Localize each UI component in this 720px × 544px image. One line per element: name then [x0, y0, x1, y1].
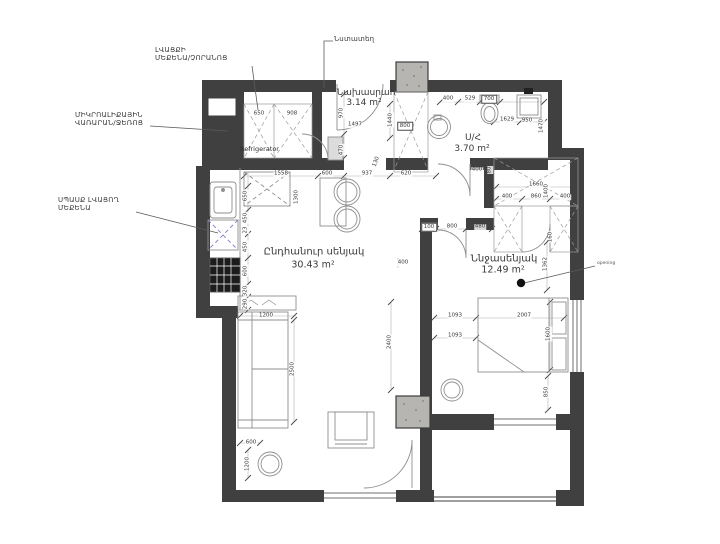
- dimension-label: 1200: [245, 457, 251, 472]
- balcony-rail: [434, 497, 556, 501]
- dimension-label: 400: [501, 194, 513, 200]
- dimension-label: 400: [397, 260, 409, 266]
- toilet-bowl: [481, 103, 498, 124]
- wall-niche: [208, 98, 236, 116]
- dimension-label: 529: [464, 96, 476, 102]
- dishwasher-callout: ՍՊԱՍՔ ԼՎԱՑՈՂՄԵՔԵՆԱ: [58, 197, 119, 213]
- washer-dryer-line1: ԼՎԱՑՔԻ: [155, 46, 186, 54]
- pantry-counter: [320, 178, 346, 226]
- kitchen-fixtures: [208, 168, 360, 310]
- blanket-fold: [478, 340, 524, 372]
- dimension-label: 1093: [448, 333, 463, 339]
- hallway-name: Նախասրահ: [337, 88, 396, 98]
- hallway-area: 3.14 m²: [346, 98, 381, 108]
- dimension-label: 23: [243, 226, 249, 234]
- dimension-label: 1600: [546, 327, 552, 342]
- dimension-label: 320: [243, 285, 249, 297]
- microwave-line2: ՎԱՌԱՐԱՆ/ՋԵՌՈՑ: [75, 119, 143, 127]
- refrigerator-label: Refrigerator: [240, 146, 279, 153]
- washer-dryer-line2: ՄԵՔԵՆԱ/ՉՈՐԱՆՈՑ: [155, 54, 227, 62]
- dimension-label: 480: [474, 224, 486, 230]
- dimension-label: 1362: [543, 257, 549, 272]
- dimension-label: 908: [286, 111, 298, 117]
- dimension-label: 650: [243, 190, 249, 202]
- bedroom-door: [438, 230, 466, 258]
- balcony-door: [364, 440, 412, 488]
- dimension-label: 1558: [274, 171, 289, 177]
- dimension-label: 600: [321, 171, 333, 177]
- living-room-area: 30.43 m²: [291, 261, 334, 272]
- bathroom-area: 3.70 m²: [454, 144, 489, 154]
- dimension-label: 470: [339, 144, 345, 156]
- pillow: [552, 338, 566, 370]
- seat-callout: Նստատեղ: [334, 36, 374, 44]
- dimension-label: 400: [559, 194, 571, 200]
- dimension-label: 1660: [529, 182, 544, 188]
- dressing-door: [522, 224, 550, 252]
- dimension-label: 850: [544, 386, 550, 398]
- side-table: [258, 452, 282, 476]
- dishwasher-line2: ՄԵՔԵՆԱ: [58, 204, 91, 212]
- faucet: [524, 88, 533, 94]
- living-furniture: [238, 137, 374, 476]
- bathroom-door: [438, 164, 470, 196]
- dishwasher-line1: ՍՊԱՍՔ ԼՎԱՑՈՂ: [58, 196, 119, 204]
- microwave-callout: ՄԻԿՐՈԱԼԻՔԱՅԻՆՎԱՌԱՐԱՆ/ՋԵՌՈՑ: [75, 112, 143, 128]
- dimension-label: 2007: [517, 313, 532, 319]
- dimension-label: 450: [243, 212, 249, 224]
- bed: [478, 298, 568, 372]
- dimension-label: 160: [548, 231, 554, 243]
- dimension-label: 450: [243, 241, 249, 253]
- floor-plan: Նախասրահ 3.14 m² Ս/Հ 3.70 m² Ընդհանուր ս…: [0, 0, 720, 544]
- microwave-line1: ՄԻԿՐՈԱԼԻՔԱՅԻՆ: [75, 111, 143, 119]
- dimension-label: 937: [361, 171, 373, 177]
- washer-dryer-callout: ԼՎԱՑՔԻՄԵՔԵՆԱ/ՉՈՐԱՆՈՑ: [155, 47, 227, 63]
- dimension-label: 1200: [259, 313, 274, 319]
- dimension-label: 1300: [294, 190, 300, 205]
- dimension-label: 1093: [448, 313, 463, 319]
- dimension-label: 2400: [387, 335, 393, 350]
- dimension-label: 800: [397, 122, 413, 131]
- living-room-name: Ընդհանուր սենյակ: [264, 246, 365, 257]
- dimension-label: 400: [471, 167, 483, 173]
- dimension-label: 1470: [539, 119, 545, 134]
- dimension-label: 950: [521, 118, 533, 124]
- round-stools: [334, 179, 360, 232]
- bedroom-name: Ննջասենյակ: [471, 253, 538, 264]
- dimension-label: 600: [243, 265, 249, 277]
- bedroom-area: 12.49 m²: [481, 266, 524, 277]
- dimension-label: 860: [530, 194, 542, 200]
- opening-dot: [517, 279, 525, 287]
- opening-label: opening: [597, 261, 615, 266]
- bathroom-name: Ս/Հ: [465, 133, 481, 143]
- balcony-column: [396, 396, 430, 428]
- dimension-label: 700: [481, 95, 497, 104]
- sofa: [238, 312, 288, 428]
- dimension-label: 400: [442, 96, 454, 102]
- dimension-label: 80: [487, 166, 493, 174]
- dimension-label: 1629: [500, 117, 515, 123]
- dimension-label: 100: [421, 223, 437, 232]
- dimension-label: 290: [243, 298, 249, 310]
- dimension-label: 970: [339, 107, 345, 119]
- dimension-label: 1400: [544, 184, 550, 199]
- dimension-label: 1440: [388, 113, 394, 128]
- dimension-label: 2500: [290, 362, 296, 377]
- dimension-label: 620: [400, 171, 412, 177]
- floor-plan-drawing: [0, 0, 720, 544]
- dimension-label: 800: [446, 224, 458, 230]
- entry-column: [396, 62, 428, 92]
- dimension-label: 1497: [348, 122, 363, 128]
- dimension-label: 600: [245, 440, 257, 446]
- dimension-label: 650: [253, 111, 265, 117]
